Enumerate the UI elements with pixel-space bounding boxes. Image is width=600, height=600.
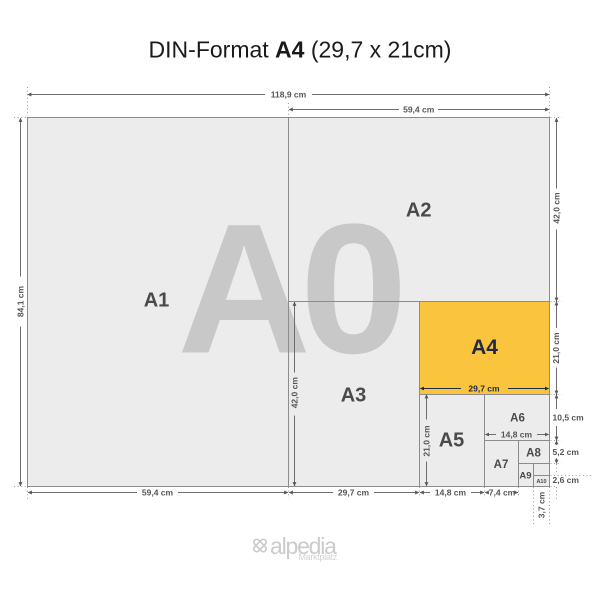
svg-text:10,5 cm: 10,5 cm <box>553 413 585 423</box>
svg-text:DIN-Format A4 (29,7 x 21cm): DIN-Format A4 (29,7 x 21cm) <box>149 37 452 63</box>
svg-text:29,7 cm: 29,7 cm <box>468 384 500 394</box>
svg-text:42,0 cm: 42,0 cm <box>290 377 300 409</box>
svg-text:2,6 cm: 2,6 cm <box>553 475 580 485</box>
svg-text:59,4 cm: 59,4 cm <box>142 488 174 498</box>
svg-text:21,0 cm: 21,0 cm <box>422 425 432 457</box>
svg-text:A5: A5 <box>439 430 465 452</box>
svg-text:59,4 cm: 59,4 cm <box>403 105 435 115</box>
svg-text:A0: A0 <box>177 187 407 393</box>
svg-text:A8: A8 <box>526 448 541 460</box>
svg-text:118,9 cm: 118,9 cm <box>271 90 307 100</box>
svg-text:42,0 cm: 42,0 cm <box>552 192 562 224</box>
svg-text:3,7 cm: 3,7 cm <box>537 491 547 518</box>
svg-text:29,7 cm: 29,7 cm <box>338 488 370 498</box>
svg-text:84,1 cm: 84,1 cm <box>16 285 26 317</box>
svg-text:A4: A4 <box>471 336 498 359</box>
svg-text:A2: A2 <box>406 200 432 222</box>
svg-text:A9: A9 <box>519 471 531 482</box>
svg-text:A7: A7 <box>494 459 509 471</box>
svg-text:A1: A1 <box>144 290 170 312</box>
svg-text:14,8 cm: 14,8 cm <box>501 430 533 440</box>
svg-text:21,0 cm: 21,0 cm <box>551 332 561 364</box>
svg-text:A10: A10 <box>536 479 546 485</box>
svg-text:A6: A6 <box>510 413 525 425</box>
svg-text:Marktplatz: Marktplatz <box>298 552 337 562</box>
svg-text:5,2 cm: 5,2 cm <box>553 447 580 457</box>
svg-text:14,8 cm: 14,8 cm <box>435 488 467 498</box>
svg-text:7,4 cm: 7,4 cm <box>489 488 516 498</box>
svg-text:A3: A3 <box>341 385 367 407</box>
